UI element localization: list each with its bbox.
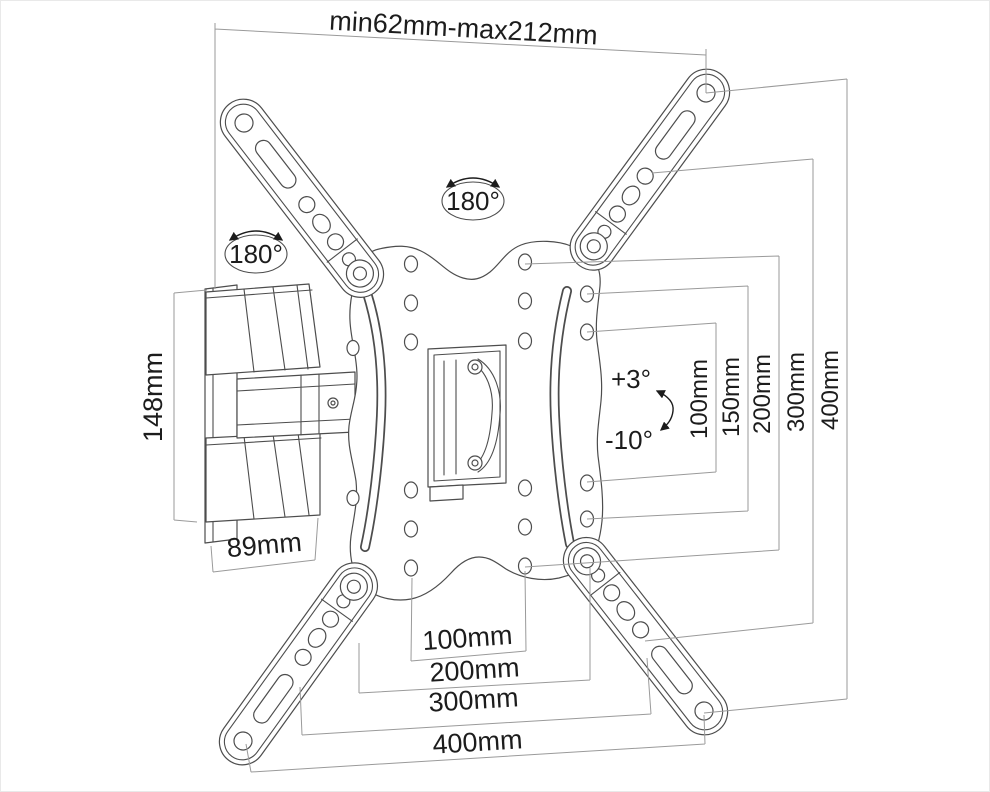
depth-label: 89mm — [226, 527, 303, 563]
side-bottom-block — [206, 432, 320, 522]
swivel-left-label: 180° — [229, 239, 283, 269]
arm-top-right — [561, 60, 739, 279]
arm-bottom-right — [554, 528, 737, 744]
arm-top-left — [211, 90, 393, 307]
depth-range-label: min62mm-max212mm — [329, 6, 599, 51]
wall-mount-diagram: min62mm-max212mm 148mm 89mm 180° 180° +3… — [1, 1, 990, 792]
svg-text:100mm: 100mm — [421, 620, 513, 656]
vesa-plate — [347, 241, 603, 600]
svg-text:400mm: 400mm — [817, 350, 844, 430]
dim-horizontal-400: 400mm — [246, 715, 705, 772]
adapter-bracket — [428, 345, 506, 501]
side-view-assembly — [205, 284, 355, 543]
dim-height-148: 148mm — [138, 290, 207, 522]
arm-bottom-left — [210, 554, 386, 774]
dim-vertical-100: 100mm — [587, 323, 716, 482]
svg-text:150mm: 150mm — [718, 357, 745, 437]
tilt-arrow-icon — [657, 391, 673, 430]
svg-text:300mm: 300mm — [783, 352, 810, 432]
height-label: 148mm — [138, 352, 168, 442]
svg-text:400mm: 400mm — [432, 724, 524, 759]
dim-vertical-150: 150mm — [587, 286, 748, 519]
swivel-badge-top: 180° — [442, 178, 504, 220]
swivel-top-label: 180° — [446, 186, 500, 216]
svg-text:200mm: 200mm — [749, 354, 776, 434]
drawing-canvas: min62mm-max212mm 148mm 89mm 180° 180° +3… — [0, 0, 990, 792]
tilt-annotation: +3° -10° — [605, 364, 673, 455]
tilt-down-label: -10° — [605, 425, 653, 455]
svg-text:100mm: 100mm — [686, 359, 713, 439]
swivel-badge-left: 180° — [225, 231, 287, 273]
svg-text:300mm: 300mm — [428, 682, 520, 717]
tilt-up-label: +3° — [611, 364, 651, 394]
